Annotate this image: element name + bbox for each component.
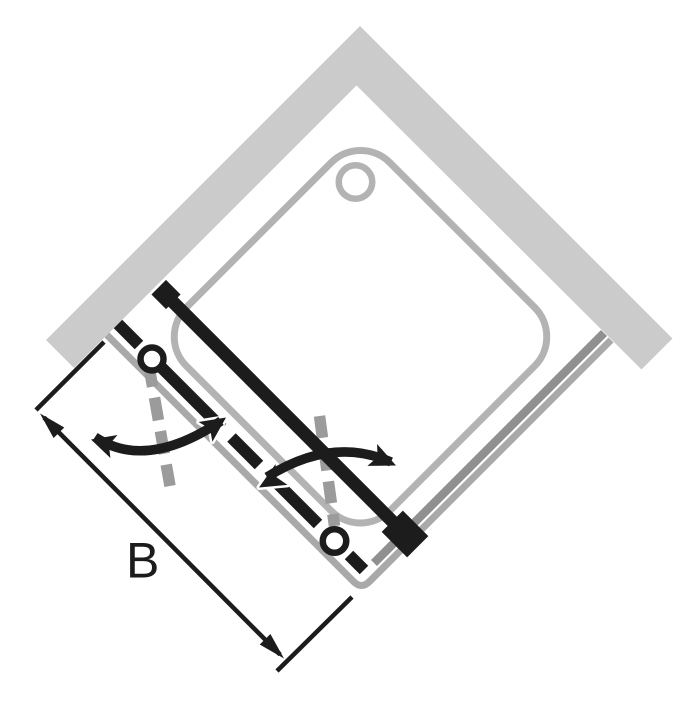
svg-text:B: B [126, 533, 159, 589]
